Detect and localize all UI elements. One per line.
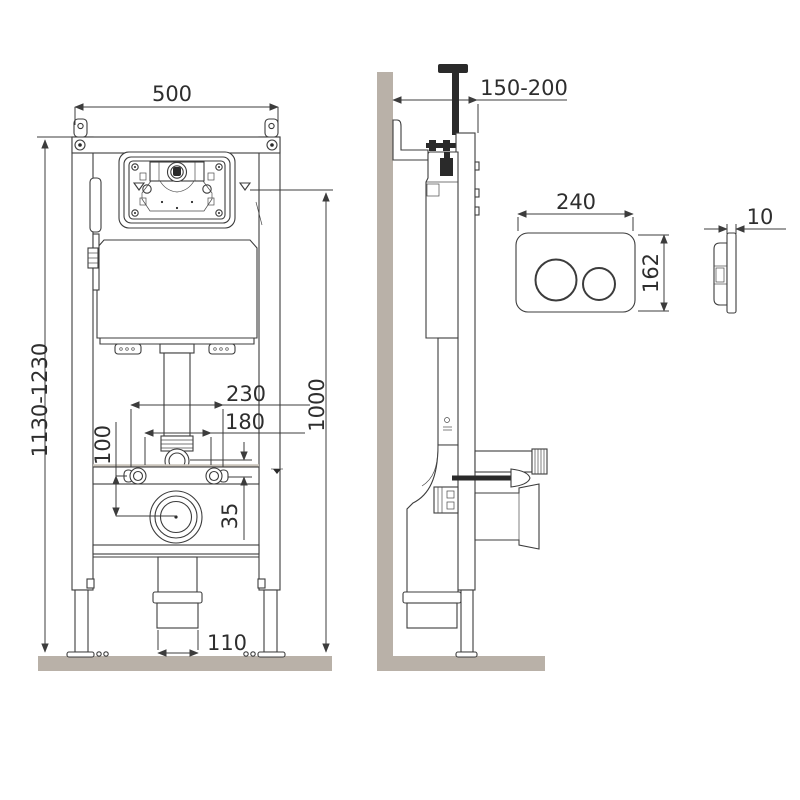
dim-label-1130-1230: 1130-1230 (28, 343, 52, 457)
dim-label-100: 100 (91, 425, 115, 465)
dim-label-240: 240 (556, 190, 596, 214)
cistern-side (426, 152, 458, 338)
dim-plate-thickness: 10 (704, 205, 786, 234)
lower-frame (67, 545, 285, 657)
flush-plate-side: 10 (704, 205, 786, 313)
flush-plate-front: 240 162 (516, 190, 669, 312)
floor-front (38, 656, 332, 671)
access-window (119, 152, 235, 228)
drain-socket (150, 491, 202, 543)
dim-wall-distance: 150-200 (393, 76, 568, 133)
dim-label-110: 110 (207, 631, 247, 655)
dim-label-162: 162 (639, 253, 663, 293)
dim-label-230: 230 (226, 382, 266, 406)
dim-label-150-200: 150-200 (480, 76, 568, 100)
installation-drawing: 500 1130-1230 1000 230 180 (0, 0, 800, 800)
dim-label-500: 500 (152, 82, 192, 106)
dim-plate-height: 162 (638, 235, 669, 311)
leg-right (264, 590, 277, 652)
dim-outlet-width: 110 (158, 630, 247, 655)
floor-side (377, 656, 545, 671)
dim-frame-height: 1130-1230 (28, 137, 72, 652)
flush-pipe-front (160, 344, 194, 473)
leg-left (75, 590, 88, 652)
mounting-bolt-right (206, 468, 222, 484)
hanger-tab-left (74, 119, 87, 137)
dim-upper-span: 230 (131, 382, 310, 467)
flush-bend-side (403, 338, 461, 628)
dim-plate-width: 240 (518, 190, 633, 231)
fill-valve (440, 158, 453, 176)
mounting-bolt-left (130, 468, 146, 484)
dim-label-35: 35 (218, 503, 242, 530)
wall (377, 72, 393, 656)
dim-axis-height: 1000 (305, 193, 329, 652)
foot-right (258, 652, 285, 657)
dim-label-10: 10 (747, 205, 774, 229)
foot-left (67, 652, 94, 657)
dim-label-180: 180 (225, 410, 265, 434)
mounting-rail (93, 466, 283, 485)
side-view: 150-200 (377, 64, 568, 671)
front-view: 500 1130-1230 1000 230 180 (28, 82, 333, 671)
hanger-tab-right (265, 119, 278, 137)
dim-frame-width: 500 (75, 82, 278, 125)
